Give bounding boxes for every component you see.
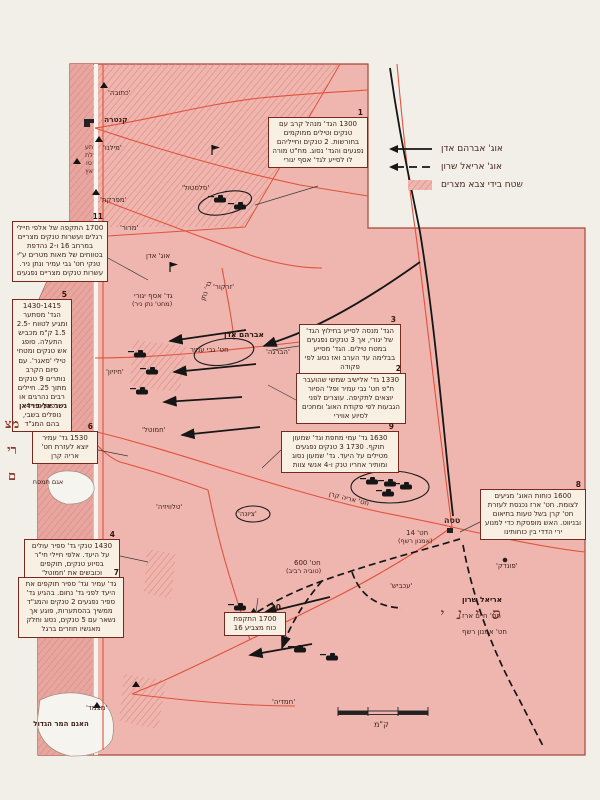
place-salstul: 'סלסטול' xyxy=(182,184,209,192)
place-tasa: טסה xyxy=(444,516,460,525)
place-lake-timsah: אגם תמסח xyxy=(30,479,66,486)
note-text-2: 1330 גד' אלישיב שמשי שהועבר ת"פ חט' גבי … xyxy=(302,376,400,420)
legend-label-egypt-area: שטח בידי צבא מצרים xyxy=(441,180,523,190)
note-box-5: 5 1430-1415 הגד' מסתער ומגיע לטווח 2.5-1… xyxy=(12,299,72,432)
note-box-4: 4 1430 טנקי גד' ספיר עולים על היעד. אלפי… xyxy=(24,539,120,581)
legend-row-adan: אוג' אברהם אדן xyxy=(388,140,593,158)
legend-label-sharon: אוג' אריאל שרון xyxy=(441,162,502,172)
note-box-2: 2 1330 גד' אלישיב שמשי שהועבר ת"פ חט' גב… xyxy=(296,373,406,424)
suez-canal xyxy=(94,64,98,755)
note-text-8: 1600 כוחות האוג' מגיעים לצומת. חט' ארז נ… xyxy=(485,492,581,536)
note-text-6: 1530 גד' עמיר יוצא לעזרת חט' אריה קרן xyxy=(41,434,88,460)
note-text-4: 1430 טנקי גד' ספיר עולים על היעד. אלפי ח… xyxy=(32,542,112,577)
note-number-6: 6 xyxy=(88,422,93,432)
place-firdan-bridge: גשר אל-פרדאן xyxy=(12,402,74,410)
place-great-bitter-lake: האגם המר הגדול xyxy=(32,720,90,728)
note-number-2: 2 xyxy=(396,364,401,374)
unit-gabi-amir: חט' גבי עמיר xyxy=(190,346,229,354)
unit-ugda-adan: אוג' אדן xyxy=(143,252,173,260)
place-hamadia: 'חמדיה' xyxy=(272,698,295,706)
note-box-1: 1 1300 הגד' מנהל קרב עם טנקים וטילים ממו… xyxy=(268,117,368,168)
note-number-10: 10 xyxy=(271,603,281,613)
note-text-3: הגד' מנסה לסייע בחילוץ הגד' של יגורי, אך… xyxy=(305,327,395,371)
scale-label: ק"מ xyxy=(374,720,389,729)
unit-brigade-600: חט' 600 xyxy=(294,559,321,567)
place-zarkor: 'זרקור' xyxy=(213,283,234,291)
unit-brigade-14: חט' 14 xyxy=(406,529,428,537)
note-box-9: 9 1630 גד' עמי מחפת וגד' שמעון תוקף. 173… xyxy=(281,431,399,473)
note-number-3: 3 xyxy=(391,315,396,325)
note-box-11: 11 1700 התקפה של אלפי חיילי רגלים ועשרות… xyxy=(12,221,108,282)
note-box-7: 7 גד' עמיר וגד' ספיר תוקפים את היעד לפני… xyxy=(18,577,124,638)
unit-haim-erez: חט' חיים ארז xyxy=(462,612,501,620)
place-pundak: 'פונדק' xyxy=(496,562,518,570)
legend-row-sharon: אוג' אריאל שרון xyxy=(388,158,593,176)
note-number-4: 4 xyxy=(110,530,115,540)
place-hamutal: 'חמוטל' xyxy=(142,426,166,434)
region-egypt: מצרים xyxy=(4,412,20,490)
note-box-8: 8 1600 כוחות האוג' מגיעים לצומת. חט' ארז… xyxy=(480,489,586,540)
place-havraga: 'הברגה' xyxy=(266,348,290,356)
note-box-10: 10 1700 התקפת כוח מצביע 16 xyxy=(224,612,286,636)
legend-label-adan: אוג' אברהם אדן xyxy=(441,144,503,154)
unit-ariel-sharon: אריאל שרון xyxy=(462,596,502,605)
place-kantara: קנטרה xyxy=(104,116,128,125)
place-matzmed: 'מצמד' xyxy=(86,704,107,712)
place-ketuba: 'כתובה' xyxy=(108,89,131,97)
legend: אוג' אברהם אדן אוג' אריאל שרון שטח בידי … xyxy=(388,140,593,194)
note-text-7: גד' עמיר וגד' ספיר תוקפים את היעד לפני ג… xyxy=(26,580,117,633)
map-page: אוג' אברהם אדן אוג' אריאל שרון שטח בידי … xyxy=(0,0,600,800)
legend-row-egypt-area: שטח בידי צבא מצרים xyxy=(388,176,593,194)
unit-asaf-yaguri: גד' אסף יגורי xyxy=(134,292,173,300)
note-box-3: 3 הגד' מנסה לסייע בחילוץ הגד' של יגורי, … xyxy=(299,324,401,375)
place-tziona: 'ציונה' xyxy=(238,510,257,518)
note-text-1: 1300 הגד' מנהל קרב עם טנקים וטילים ממוקמ… xyxy=(272,120,363,164)
note-text-11: 1700 התקפה של אלפי חיילי רגלים ועשרות טנ… xyxy=(17,224,104,277)
unit-amnon-reshef: חט' אמנון רשף xyxy=(462,628,507,636)
note-number-7: 7 xyxy=(114,568,119,578)
place-televizia: 'טלוויזיה' xyxy=(156,503,182,511)
note-number-11: 11 xyxy=(93,212,103,222)
label-suez-canal: תעלת סואץ xyxy=(84,143,94,175)
note-number-8: 8 xyxy=(576,480,581,490)
hatched-area-icon xyxy=(388,179,434,191)
note-text-9: 1630 גד' עמי מחפת וגד' שמעון תוקף. 1730 … xyxy=(292,434,388,469)
place-milano: 'מילנו' xyxy=(103,144,122,152)
place-maror: 'מרור' xyxy=(120,224,138,232)
note-text-10: 1700 התקפת כוח מצביע 16 xyxy=(233,615,276,632)
route-avraham-adan: אברהם אדן xyxy=(224,331,264,340)
note-box-6: 6 1530 גד' עמיר יוצא לעזרת חט' אריה קרן xyxy=(32,431,98,464)
note-number-9: 9 xyxy=(389,422,394,432)
dashed-arrow-icon xyxy=(388,162,434,172)
unit-asaf-yaguri-2: (מחט' נתן ניר) xyxy=(132,301,172,308)
solid-arrow-icon xyxy=(388,144,434,154)
place-hizayon: 'חיזיון' xyxy=(106,368,124,376)
place-akavish: 'עכביש' xyxy=(390,582,413,590)
note-number-1: 1 xyxy=(358,108,363,118)
unit-brigade-14-commander: (אמנון רשף) xyxy=(398,538,432,545)
place-mifreket: 'מפרקת' xyxy=(100,196,127,204)
note-number-5: 5 xyxy=(62,290,67,300)
unit-brigade-600-commander: (טוביה רביב) xyxy=(286,568,321,575)
